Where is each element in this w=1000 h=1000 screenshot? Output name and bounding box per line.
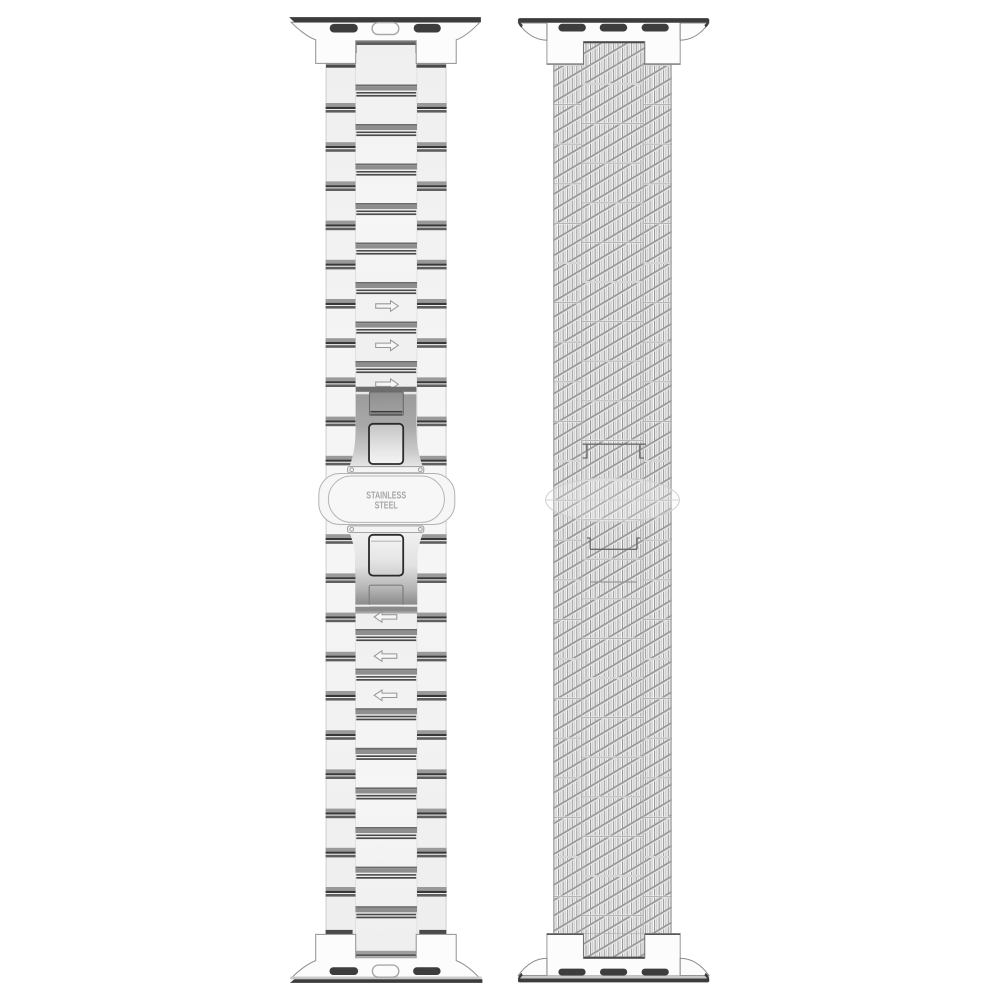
svg-text:STEEL: STEEL [375,499,399,510]
